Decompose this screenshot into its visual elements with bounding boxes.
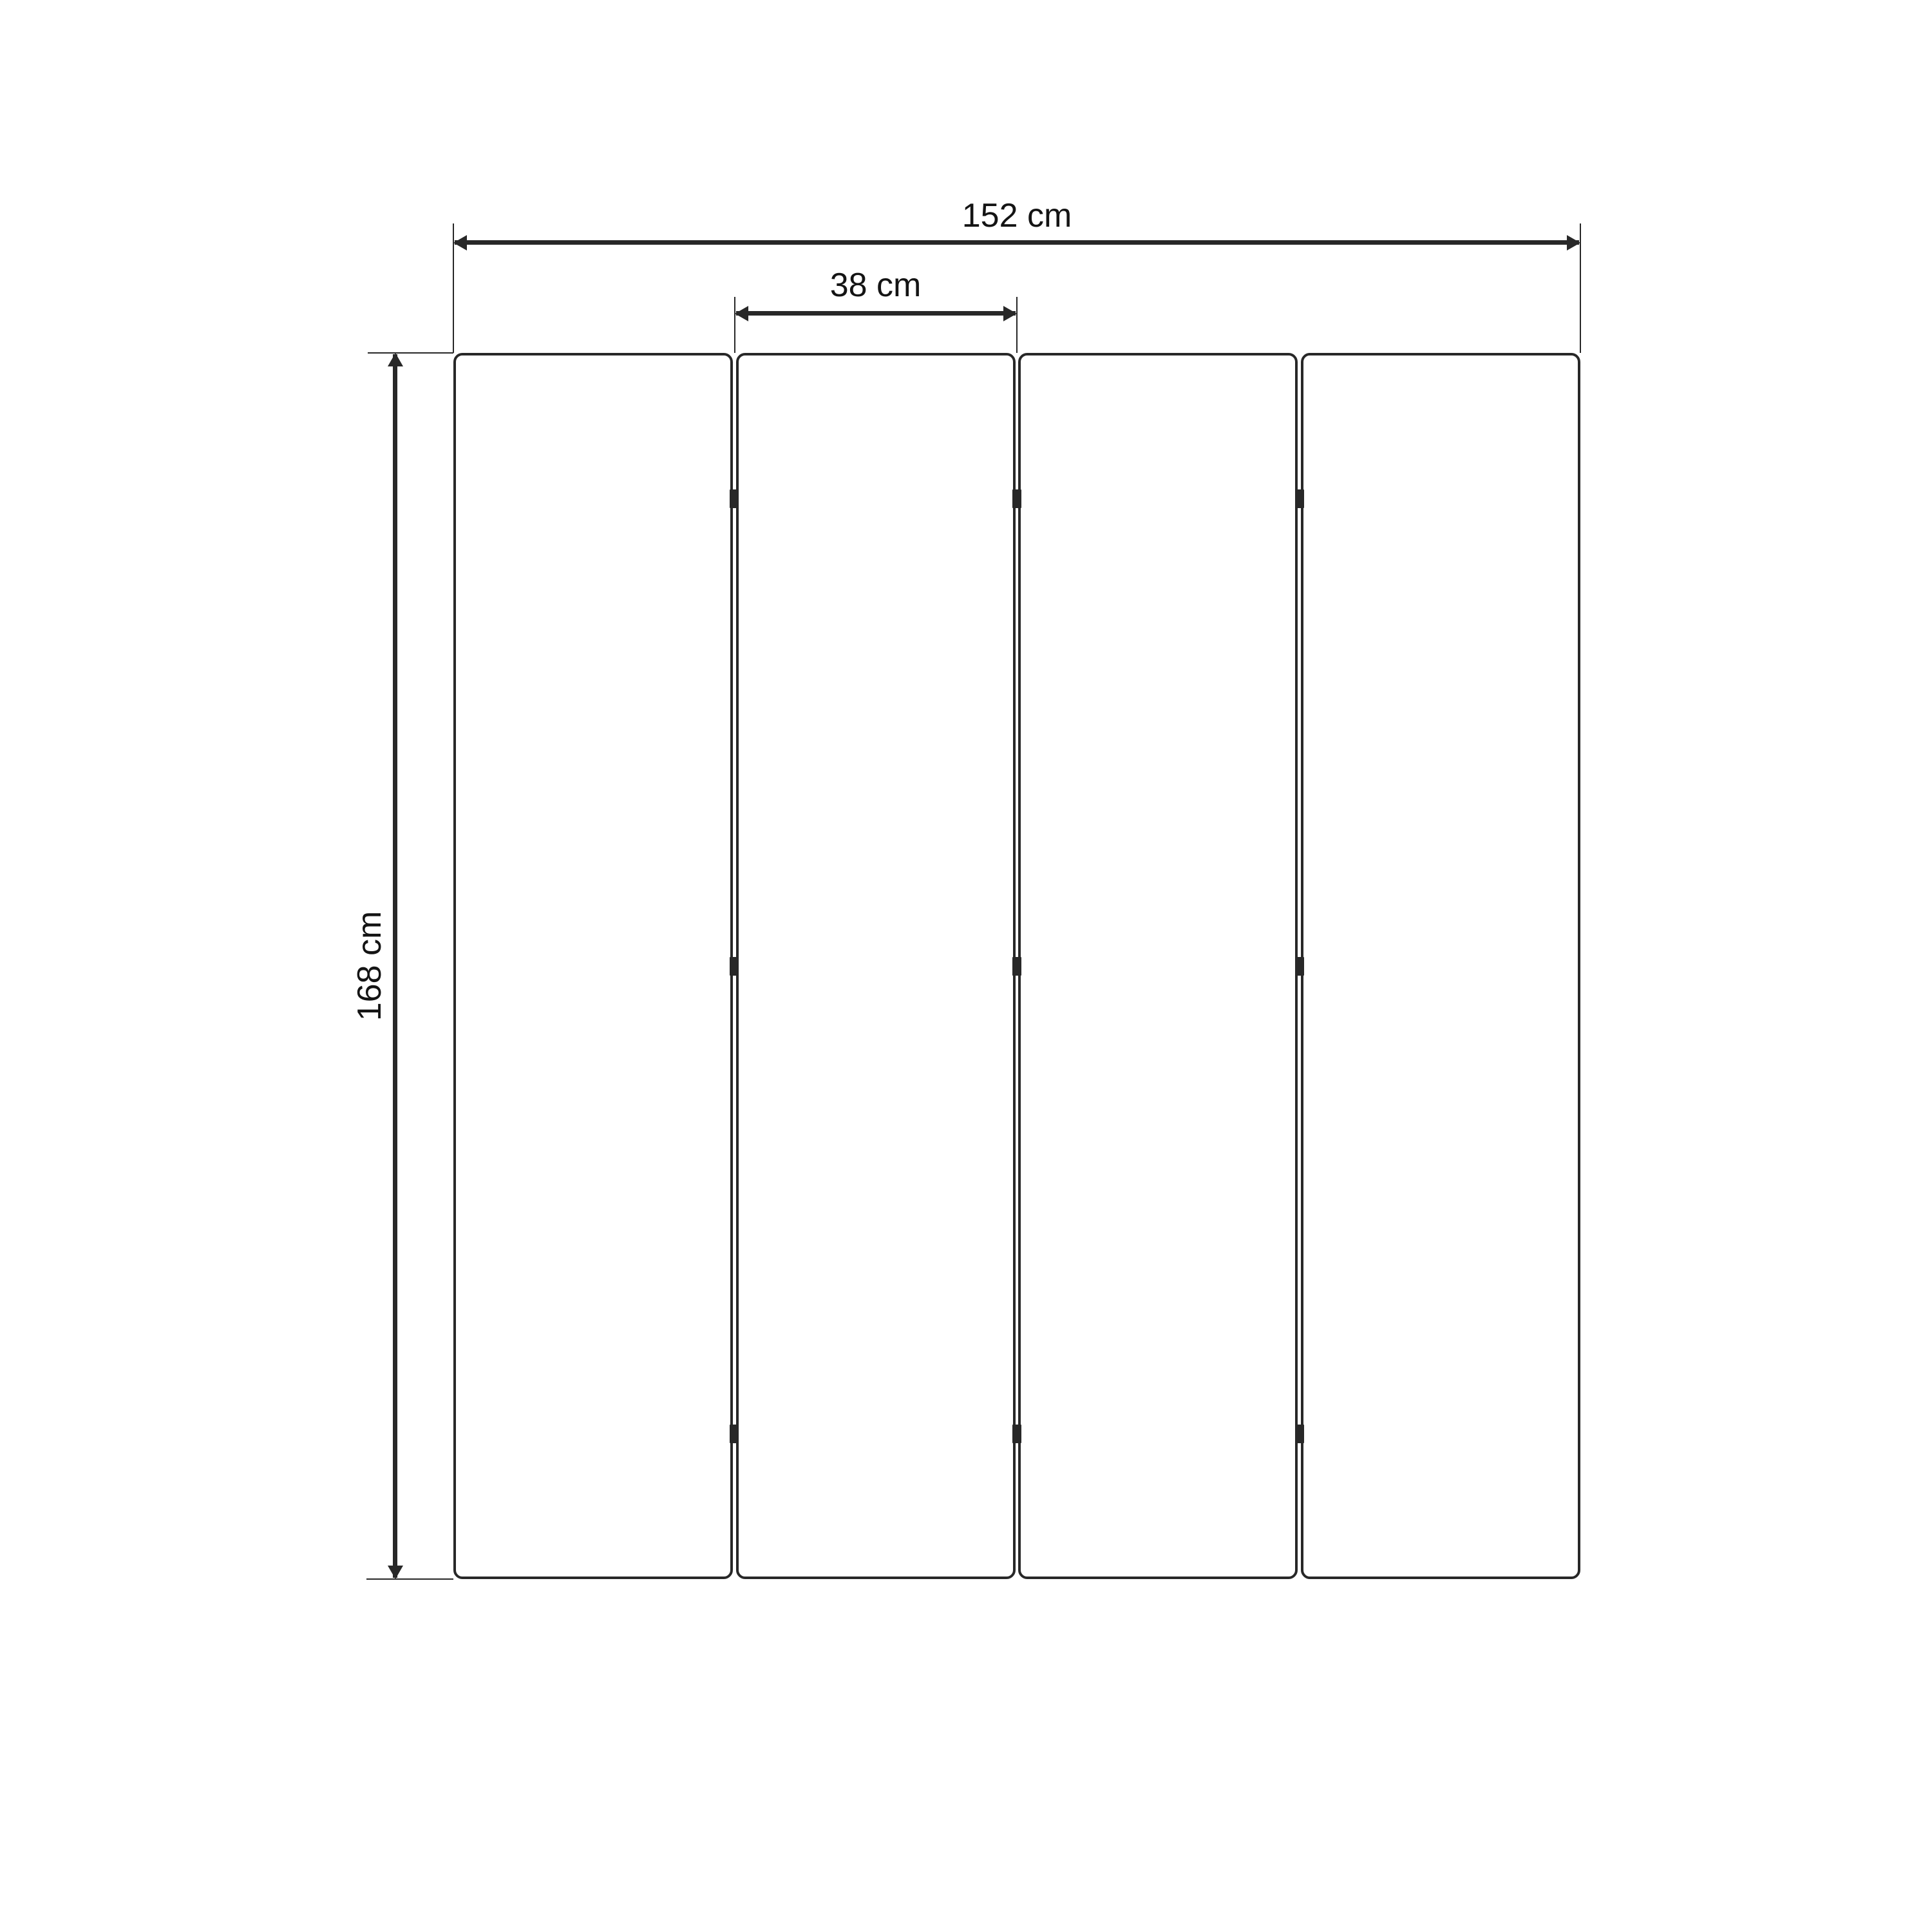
arrowhead-down-icon: [388, 1566, 403, 1579]
arrowhead-right-icon: [1003, 306, 1017, 321]
dimension-line-panel-width: [736, 311, 1016, 316]
dim-panel-width-label: 38 cm: [735, 269, 1016, 302]
extension-line-bottom: [366, 1578, 453, 1580]
hinge-mark: [1295, 957, 1304, 976]
hinge-mark: [1295, 1425, 1304, 1443]
panel-3: [1018, 353, 1298, 1579]
hinge-mark: [1012, 957, 1021, 976]
extension-line-top: [368, 352, 453, 354]
hinge-mark: [1295, 489, 1304, 508]
hinge-mark: [1012, 1425, 1021, 1443]
arrowhead-left-icon: [453, 235, 467, 251]
page: { "page": { "background": "#ffffff", "li…: [0, 0, 1932, 1932]
panel-4: [1301, 353, 1580, 1579]
dim-total-width-label: 152 cm: [453, 199, 1580, 232]
hinge-mark: [1012, 489, 1021, 508]
panel-1: [453, 353, 733, 1579]
arrowhead-left-icon: [735, 306, 748, 321]
dim-height-label: 168 cm: [353, 911, 386, 1021]
panel-2: [736, 353, 1016, 1579]
hinge-mark: [730, 489, 739, 508]
hinge-mark: [730, 1425, 739, 1443]
folding-screen-dimension-diagram: 152 cm 38 cm 168 cm: [0, 0, 1932, 1932]
dimension-line-height: [393, 354, 397, 1578]
arrowhead-right-icon: [1567, 235, 1580, 251]
arrowhead-up-icon: [388, 353, 403, 366]
dimension-line-total-width: [455, 240, 1579, 245]
hinge-mark: [730, 957, 739, 976]
